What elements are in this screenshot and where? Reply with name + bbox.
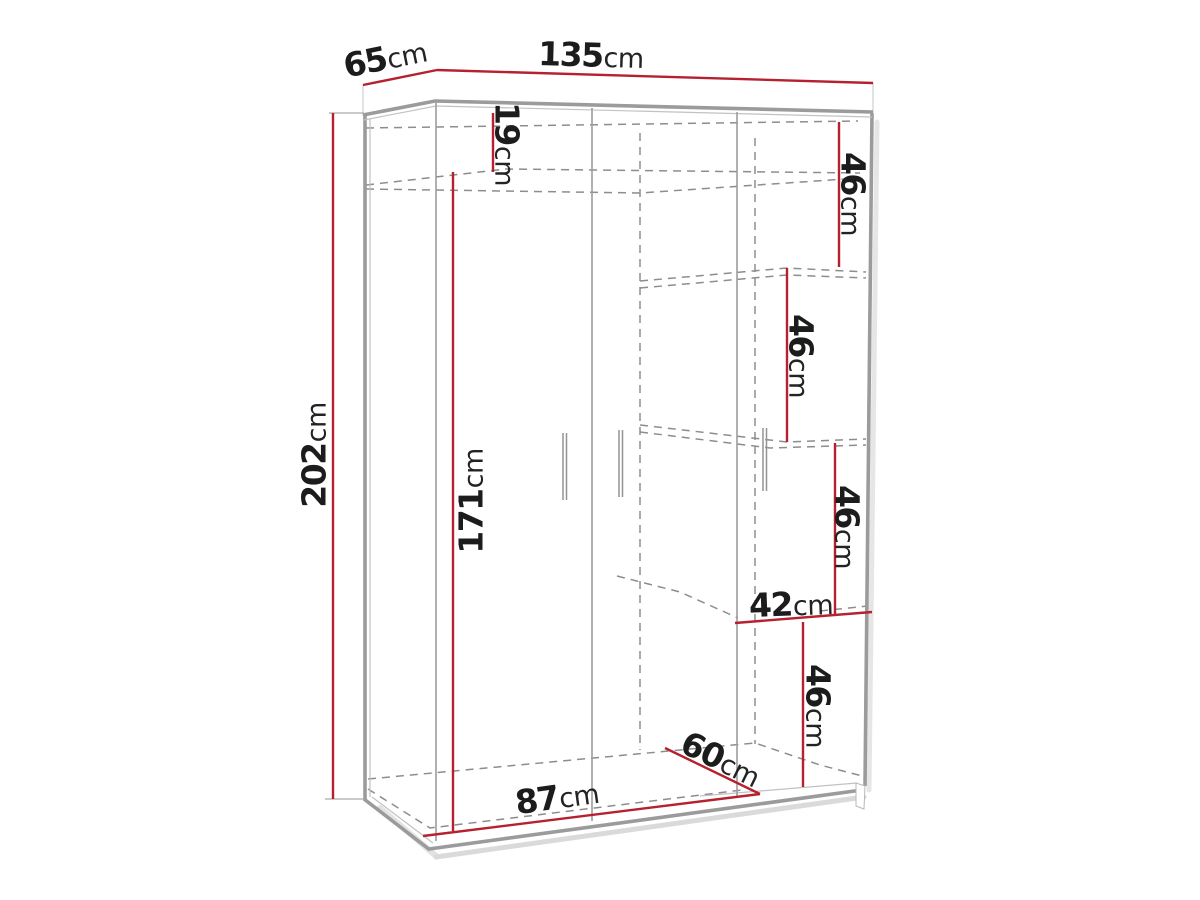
dimension-label-top-19: 19cm — [491, 102, 524, 186]
dimension-label-width-135: 135cm — [538, 37, 644, 73]
dimension-label-shelf2-46: 46cm — [785, 314, 818, 398]
dimension-label-shelfwidth-42: 42cm — [748, 586, 833, 622]
plinth-right-corner — [856, 783, 865, 809]
bottom-edge — [429, 790, 862, 849]
door-handle-icon — [763, 428, 767, 491]
wardrobe-dimension-diagram: 65cm 135cm 202cm 19cm 171cm 46cm 46cm 46… — [0, 0, 1200, 900]
dimension-label-shelf1-46: 46cm — [837, 152, 870, 236]
dimension-label-shelf4-46: 46cm — [802, 664, 835, 748]
wardrobe-outline — [363, 101, 873, 850]
dimension-lines — [333, 70, 873, 836]
dimension-label-height-202: 202cm — [298, 402, 331, 508]
door-handle-icon — [563, 433, 567, 500]
dimension-label-shelf3-46: 46cm — [831, 485, 864, 569]
dimension-label-door-171: 171cm — [455, 448, 488, 554]
wardrobe-line-drawing — [0, 0, 1200, 900]
wardrobe-inner-lines — [364, 106, 872, 843]
door-handle-icon — [619, 430, 623, 497]
hidden-edges-dashed — [366, 121, 868, 828]
top-panel — [363, 70, 873, 115]
